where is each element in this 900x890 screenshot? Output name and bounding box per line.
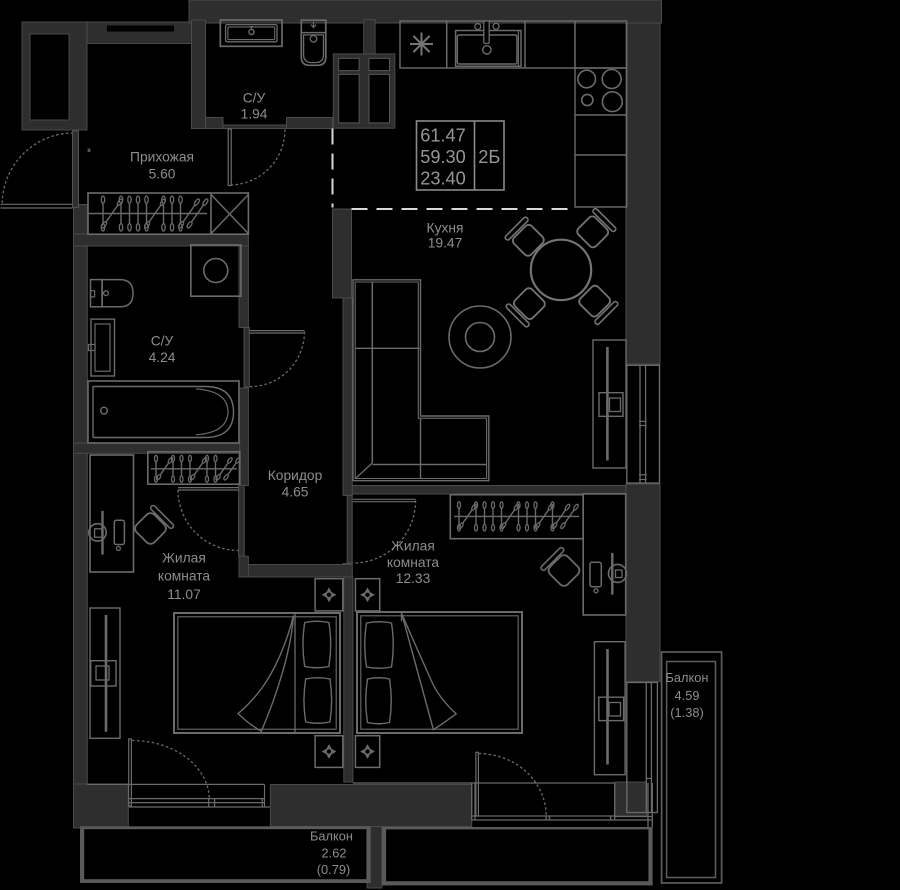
svg-text:Кухня: Кухня [427, 221, 464, 236]
svg-text:4.65: 4.65 [282, 485, 309, 500]
svg-text:23.40: 23.40 [420, 169, 466, 189]
svg-text:С/У: С/У [243, 91, 266, 106]
svg-text:59.30: 59.30 [420, 147, 466, 167]
svg-text:11.07: 11.07 [167, 587, 201, 602]
svg-text:Прихожая: Прихожая [130, 150, 194, 165]
svg-text:Балкон: Балкон [666, 670, 709, 685]
svg-text:комната: комната [158, 569, 211, 584]
svg-text:12.33: 12.33 [396, 571, 431, 586]
svg-text:5.60: 5.60 [149, 167, 176, 182]
svg-text:19.47: 19.47 [428, 236, 463, 251]
svg-text:1.94: 1.94 [241, 107, 268, 122]
svg-text:Жилая: Жилая [162, 551, 206, 566]
svg-text:комната: комната [387, 555, 440, 570]
svg-text:С/У: С/У [151, 334, 174, 349]
svg-text:2.62: 2.62 [322, 846, 347, 861]
svg-text:4.24: 4.24 [149, 350, 176, 365]
svg-text:Коридор: Коридор [268, 468, 323, 483]
svg-text:4.59: 4.59 [675, 688, 700, 703]
svg-text:Балкон: Балкон [310, 828, 353, 843]
svg-text:(0.79): (0.79) [317, 862, 350, 877]
svg-text:61.47: 61.47 [420, 126, 466, 146]
svg-text:Жилая: Жилая [391, 539, 435, 554]
svg-text:(1.38): (1.38) [670, 705, 703, 720]
svg-text:2Б: 2Б [478, 147, 500, 167]
